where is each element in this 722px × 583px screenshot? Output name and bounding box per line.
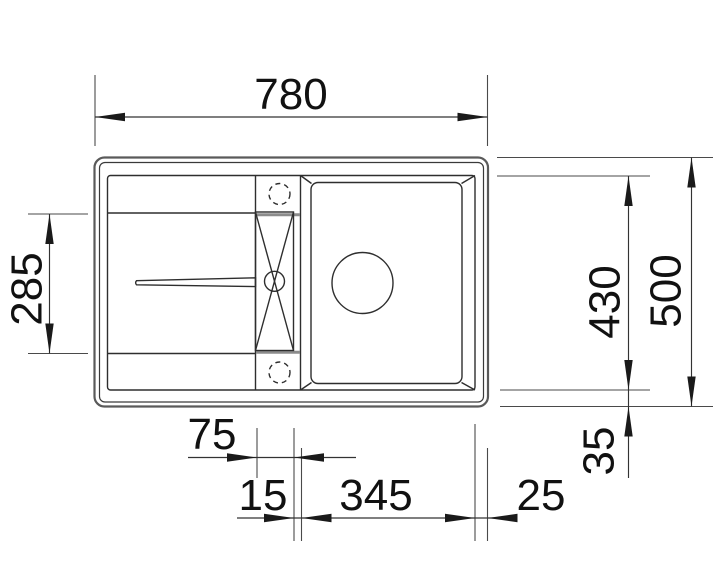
dim-label-35: 35 (575, 427, 624, 476)
sink-technical-drawing: 780 285 430 500 35 (0, 0, 722, 583)
bowl-bottom-outline (311, 183, 462, 384)
bowl-chamfer-bl (301, 383, 312, 391)
dimension-430: 430 (497, 176, 650, 390)
arrowhead-up-icon (45, 214, 53, 244)
dimension-row-bottom: 15 345 25 (237, 471, 565, 522)
arrowhead-left-icon (302, 514, 332, 522)
dimension-780: 780 (95, 70, 488, 146)
bowl-drain-circle (332, 253, 393, 314)
sink-inner-rim (100, 163, 484, 403)
drainboard (108, 213, 256, 354)
arrowhead-down-icon (687, 377, 695, 407)
arrowhead-left-icon (294, 453, 324, 461)
dim-label-780: 780 (254, 70, 327, 119)
bowl-chamfer-tl (301, 176, 312, 184)
dim-label-500: 500 (642, 254, 691, 327)
arrowhead-up-icon (624, 407, 632, 437)
dim-label-25: 25 (517, 471, 566, 520)
bowl-chamfer-tr (462, 176, 476, 184)
drain-groove (136, 278, 256, 287)
arrowhead-right-icon (458, 113, 488, 121)
arrowhead-up-icon (687, 158, 695, 188)
dim-label-345: 345 (339, 471, 412, 520)
dim-label-15: 15 (239, 471, 288, 520)
sink-outline (95, 158, 489, 407)
sink-outer-edge (95, 158, 489, 407)
bowl-chamfer-br (462, 383, 476, 391)
tap-hole-top-icon (269, 184, 290, 205)
arrowhead-left-icon (488, 514, 518, 522)
dimension-285: 285 (3, 214, 89, 354)
tap-hole-bottom-icon (269, 362, 290, 383)
dimension-35: 35 (575, 390, 633, 478)
arrowhead-up-icon (624, 176, 632, 206)
arrowhead-right-icon (445, 514, 475, 522)
arrowhead-left-icon (95, 113, 125, 121)
dimension-75: 75 (188, 410, 356, 462)
arrowhead-down-icon (624, 360, 632, 390)
drawing-canvas: 780 285 430 500 35 (0, 0, 722, 583)
dim-label-430: 430 (581, 265, 630, 338)
bowl (301, 176, 476, 391)
dim-label-75: 75 (188, 410, 237, 459)
basin-outline (108, 176, 476, 391)
dim-label-285: 285 (3, 252, 52, 325)
basin-area (108, 176, 476, 391)
arrowhead-down-icon (45, 324, 53, 354)
tap-strip (256, 184, 301, 384)
